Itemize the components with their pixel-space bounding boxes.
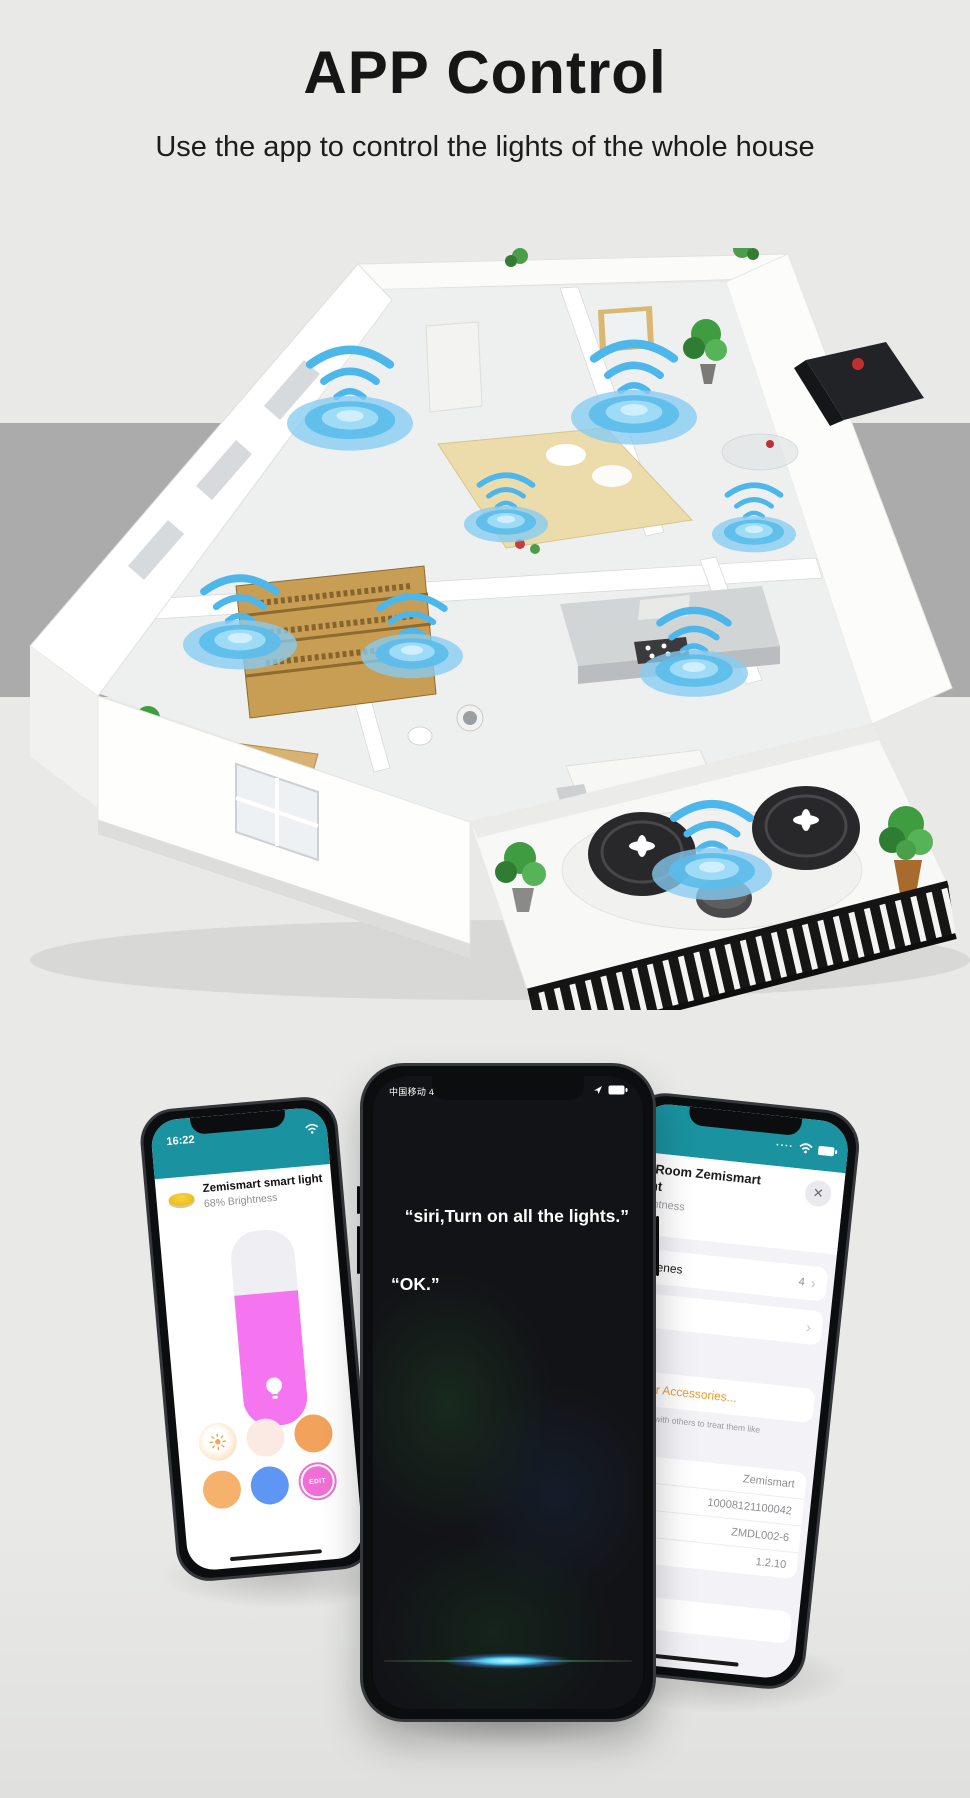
battery-icon (817, 1145, 838, 1157)
page-title: APP Control (0, 38, 970, 107)
bedside-item (530, 544, 540, 554)
phone-left: 16:22 Zemismart smart light 68% Brightne… (138, 1094, 377, 1583)
bulb-icon (262, 1375, 286, 1405)
close-icon: ✕ (812, 1185, 825, 1202)
page-subtitle: Use the app to control the lights of the… (0, 131, 970, 164)
house-floorplan (0, 248, 970, 1010)
status-time: 16:22 (166, 1134, 195, 1148)
wardrobe (426, 322, 482, 412)
phone-center: 中国移动 4G “siri,Turn on all the lights.” “… (360, 1063, 656, 1722)
brightness-slider-fill (234, 1290, 309, 1428)
chevron-right-icon: › (810, 1276, 817, 1291)
edit-button[interactable]: EDIT (297, 1461, 338, 1502)
hero-header: APP Control Use the app to control the l… (0, 0, 970, 164)
close-button[interactable]: ✕ (804, 1179, 833, 1208)
info-value: 10008121100042 (707, 1497, 793, 1518)
siri-command-text: “siri,Turn on all the lights.” (405, 1206, 629, 1227)
location-arrow-icon (593, 1085, 603, 1095)
siri-waveform (384, 1655, 632, 1667)
swatch-light-orange[interactable] (201, 1469, 242, 1510)
battery-icon (608, 1085, 628, 1095)
swatch-orange[interactable] (293, 1413, 334, 1454)
floorplan-illustration (0, 248, 970, 1010)
swatch-blue[interactable] (249, 1465, 290, 1506)
swatch-warm-white[interactable] (197, 1421, 238, 1462)
marketing-page: APP Control Use the app to control the l… (0, 0, 970, 1798)
scenes-count: 4 (798, 1276, 805, 1289)
info-value: ZMDL002-6 (731, 1526, 790, 1544)
status-icons: •••• (776, 1140, 839, 1157)
chevron-right-icon: › (805, 1320, 812, 1335)
device-info-row: Zemismart smart light 68% Brightness (167, 1173, 324, 1213)
pillow (592, 465, 632, 487)
volume-button (357, 1186, 360, 1214)
red-cushion (852, 358, 864, 370)
phone-notch (432, 1076, 584, 1100)
brightness-slider[interactable] (229, 1227, 310, 1428)
status-icons (593, 1085, 628, 1095)
pillow (546, 444, 586, 466)
volume-button (357, 1226, 360, 1274)
swatch-soft-pink[interactable] (245, 1417, 286, 1458)
siri-screen: 中国移动 4G “siri,Turn on all the lights.” “… (373, 1076, 643, 1709)
toilet (408, 727, 432, 745)
wifi-status-icon (304, 1123, 319, 1135)
sun-icon (208, 1432, 228, 1452)
power-button (656, 1216, 659, 1276)
wifi-status-icon (798, 1142, 813, 1154)
signal-dots-icon: •••• (776, 1142, 794, 1151)
glass-table (722, 434, 798, 470)
color-swatch-grid: EDIT (197, 1413, 338, 1510)
info-value: Zemismart (742, 1473, 795, 1490)
wicker-chair (752, 786, 860, 870)
phone-left-screen: 16:22 Zemismart smart light 68% Brightne… (150, 1106, 365, 1572)
table-item (766, 440, 774, 448)
home-indicator (230, 1549, 322, 1561)
info-value: 1.2.10 (755, 1556, 787, 1571)
bulb-icon (168, 1192, 195, 1207)
siri-reply-text: “OK.” (391, 1274, 440, 1295)
edit-button-label: EDIT (301, 1465, 334, 1498)
